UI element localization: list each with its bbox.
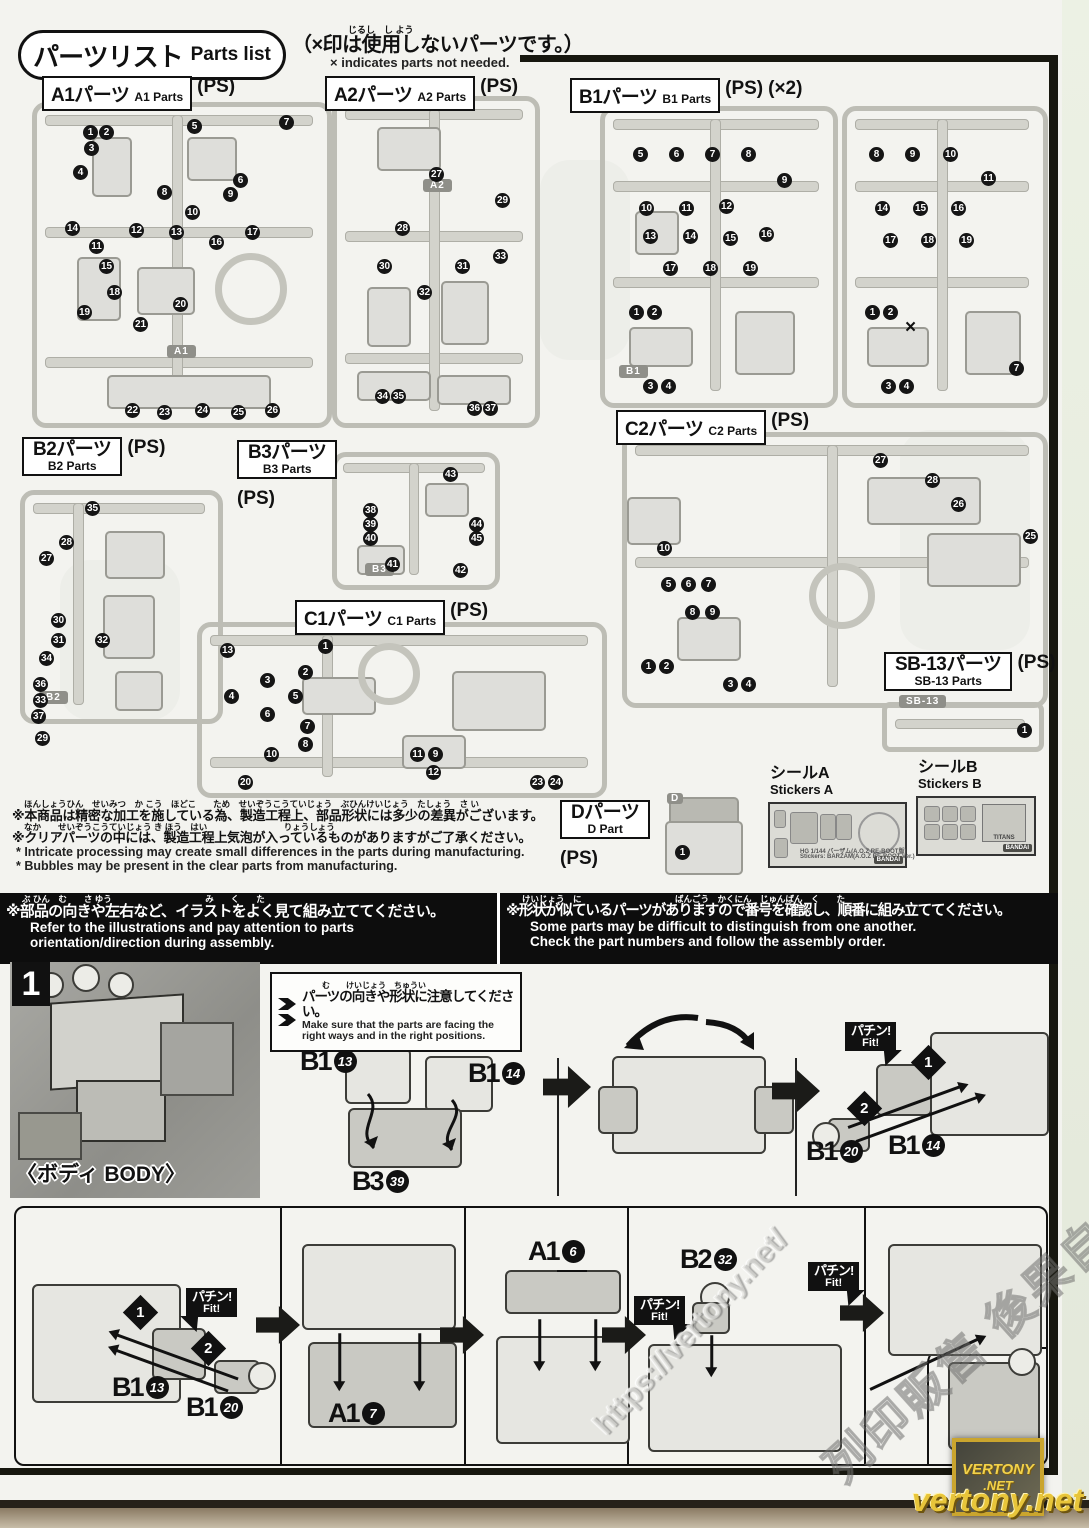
warning-left: ぶ ひん む さ ゆう み く た ※部品の向きや左右など、イラストをよく見て組… [6, 895, 492, 951]
part-number-badge: 40 [363, 531, 378, 546]
part-number-badge: 10 [657, 541, 672, 556]
part-ref-b1-14: B114 [888, 1130, 945, 1161]
sprue-b3: B3 4338394044454142 [332, 452, 500, 590]
c2-label-en: C2 Parts [708, 424, 757, 438]
section-label-b1: B1パーツ B1 Parts (PS) (×2) [570, 78, 802, 113]
part-number-badge: 38 [363, 503, 378, 518]
part-number-badge: 18 [921, 233, 936, 248]
sb13-material: (PS) [1017, 652, 1055, 674]
joint-ball [108, 972, 134, 998]
part-number-badge: 1 [83, 125, 98, 140]
part-number-badge: 4 [73, 165, 88, 180]
section-label-c2: C2パーツ C2 Parts (PS) [616, 410, 809, 445]
stickers-a-label-jp: シールA [770, 766, 833, 783]
part-ref-b3-39: B339 [352, 1166, 409, 1197]
part-number-badge: 23 [530, 775, 545, 790]
insert-arrow [419, 1333, 422, 1383]
body-section-label: 〈ボディ BODY〉 [16, 1158, 186, 1188]
stickers-b-label-en: Stickers B [918, 777, 982, 791]
section-label-b3: B3パーツ B3 Parts (PS) [237, 440, 337, 510]
part-number-badge: 2 [659, 659, 674, 674]
part-number-badge: 5 [661, 577, 676, 592]
part-number-badge: 1 [629, 305, 644, 320]
sprue-a2-part-numbers: 2728293031323334353637 [337, 101, 535, 423]
part-number-badge: 6 [669, 147, 684, 162]
part-number-badge: 25 [1023, 529, 1038, 544]
part-number-badge: 9 [905, 147, 920, 162]
sprue-c1-part-numbers: 13123456781011912202324 [202, 627, 602, 793]
sb13-label-en: SB-13 Parts [895, 675, 1001, 688]
part-number-badge: 13 [643, 229, 658, 244]
page-title-en: Parts list [191, 44, 271, 66]
assembled-body-shape [302, 1244, 456, 1330]
part-number-badge: 4 [224, 689, 239, 704]
part-number-badge: 10 [264, 747, 279, 762]
sprue-b2: B2 3528273031323436333729 [20, 490, 223, 724]
warning-right-en1: Some parts may be difficult to distingui… [506, 920, 1052, 935]
part-number-badge: 7 [1009, 361, 1024, 376]
d-label-box: Dパーツ D Part [560, 800, 650, 839]
part-number-badge: 1 [865, 305, 880, 320]
x-note-jp: （×印は使用しないパーツです。） [292, 35, 583, 56]
part-ref-a1-7: A17 [328, 1398, 385, 1429]
part-number-badge: 7 [701, 577, 716, 592]
b3-material: (PS) [237, 488, 275, 510]
sticker [836, 814, 852, 840]
part-number-badge: 6 [260, 707, 275, 722]
d-material: (PS) [560, 848, 598, 870]
c2-material: (PS) [771, 410, 809, 432]
sticker-sheet-b: TITANS BANDAI [916, 796, 1036, 856]
joint-ball [72, 964, 100, 992]
sprue-b1-second: 89101114151617181912×347 [842, 106, 1048, 408]
part-ref-b1-13: B113 [112, 1372, 169, 1403]
part-number-badge: 3 [723, 677, 738, 692]
part-number-badge: 9 [428, 747, 443, 762]
part-number-badge: 24 [195, 403, 210, 418]
part-number-badge: 35 [85, 501, 100, 516]
part-number-badge: 44 [469, 517, 484, 532]
warning-right-jp: ※形状が似ているパーツがありますので番号を確認し、順番に組み立ててください。 [506, 904, 1052, 920]
titans-emblem-sticker: TITANS [982, 804, 1026, 842]
part-number-badge: 16 [951, 201, 966, 216]
c1-label-jp: C1パーツ [304, 604, 382, 631]
part-number-badge: 11 [410, 747, 425, 762]
stickers-a-label-en: Stickers A [770, 783, 833, 797]
part-number-badge: 6 [681, 577, 696, 592]
c1-label-box: C1パーツ C1 Parts [295, 600, 445, 635]
a1-label-jp: A1パーツ [51, 80, 129, 107]
warning-left-en2: orientation/direction during assembly. [6, 936, 492, 951]
sprue-a2: A2 2728293031323334353637 [332, 96, 540, 428]
side-armor-shape [160, 1022, 234, 1096]
part-not-used-x-mark: × [905, 317, 916, 339]
warning-right: けいじょう に ばんごう かくにん じゅんばん く た ※形状が似ているパーツが… [506, 895, 1052, 950]
part-number-badge: 14 [65, 221, 80, 236]
sticker [960, 824, 976, 840]
part-number-badge: 27 [429, 167, 444, 182]
section-label-d: Dパーツ D Part (PS) [560, 800, 650, 870]
part-number-badge: 4 [741, 677, 756, 692]
sb13-label-box: SB-13パーツ SB-13 Parts [884, 652, 1012, 691]
sprue-sb13-part-numbers: 1 [887, 707, 1039, 747]
part-number-badge: 22 [125, 403, 140, 418]
sprue-a1: A1 1234576891014121311161715181920212223… [32, 102, 332, 428]
part-number-badge: 21 [133, 317, 148, 332]
part-number-badge: 31 [455, 259, 470, 274]
part-number-badge: 3 [260, 673, 275, 688]
panel-divider [795, 1058, 797, 1196]
callout-en2: right ways and in the right positions. [302, 1031, 514, 1042]
b1-quantity: (×2) [768, 78, 802, 100]
part-number-badge: 15 [99, 259, 114, 274]
part-number-badge: 10 [639, 201, 654, 216]
x-note-en: × indicates parts not needed. [292, 56, 583, 70]
callout-text: む けいじょう ちゅうい パーツの向きや形状に注意してください。 Make su… [302, 982, 514, 1042]
part-number-badge: 34 [39, 651, 54, 666]
part-number-badge: 27 [873, 453, 888, 468]
fit-badge: パチン! Fit! [845, 1022, 896, 1051]
x-mark-note: じるし し よう （×印は使用しないパーツです。） × indicates pa… [292, 26, 583, 70]
page-frame-bottom [0, 1468, 1058, 1475]
d-part-drawing: D 1 [665, 797, 743, 873]
part-number-badge: 32 [417, 285, 432, 300]
d-label-en: D Part [571, 823, 639, 836]
part-number-badge: 37 [31, 709, 46, 724]
b1-material: (PS) [725, 78, 763, 100]
part-number-badge: 8 [869, 147, 884, 162]
sticker [924, 806, 940, 822]
part-number-badge: 31 [51, 633, 66, 648]
part-number-badge: 35 [391, 389, 406, 404]
part-number-badge: 36 [33, 677, 48, 692]
sticker [942, 824, 958, 840]
insert-curved-arrows-icon [340, 1090, 490, 1170]
warning-left-jp: ※部品の向きや左右など、イラストをよく見て組み立ててください。 [6, 904, 492, 921]
assembled-body-flap [598, 1086, 638, 1134]
part-number-badge: 1 [641, 659, 656, 674]
part-number-badge: 9 [223, 187, 238, 202]
b2-material: (PS) [127, 437, 165, 459]
insert-arrow [539, 1319, 542, 1363]
a1-material: (PS) [197, 76, 235, 98]
part-number-badge: 19 [77, 305, 92, 320]
a2-label-en: A2 Parts [417, 90, 466, 104]
section-label-a2: A2パーツ A2 Parts (PS) [325, 76, 518, 111]
sprue-c1: 13123456781011912202324 [197, 622, 607, 798]
part-number-badge: 7 [279, 115, 294, 130]
part-number-badge: 29 [35, 731, 50, 746]
note-en-2: * Bubbles may be present in the clear pa… [12, 860, 572, 873]
part-number-badge: 7 [300, 719, 315, 734]
part-number-badge: 28 [59, 535, 74, 550]
fit-badge: パチン! Fit! [186, 1288, 237, 1317]
insert-arrow [711, 1335, 714, 1369]
sprue-b1-first: B1 56789101112131415161718191234 [600, 106, 838, 408]
warning-right-en2: Check the part numbers and follow the as… [506, 935, 1052, 950]
instruction-manual-page: パーツリスト Parts list じるし し よう （×印は使用しないパーツで… [0, 0, 1089, 1528]
sprue-tag-a1: A1 [167, 345, 196, 358]
a2-label-jp: A2パーツ [334, 80, 412, 107]
c2-label-jp: C2パーツ [625, 414, 703, 441]
sprue-tag-d: D [667, 793, 683, 804]
a2-label-box: A2パーツ A2 Parts [325, 76, 475, 111]
part-ref-b1-20: B120 [186, 1392, 243, 1423]
part-number-badge: 1 [1017, 723, 1032, 738]
part-number-badge: 2 [298, 665, 313, 680]
part-number-badge: 28 [925, 473, 940, 488]
sprue-b1-part-numbers: 56789101112131415161718191234 [605, 111, 833, 403]
c1-label-en: C1 Parts [387, 614, 436, 628]
part-number-badge: 9 [705, 605, 720, 620]
part-number-badge: 24 [548, 775, 563, 790]
part-number-badge: 1 [675, 845, 690, 860]
b3-label-en: B3 Parts [248, 463, 326, 476]
insert-arrow [339, 1333, 342, 1383]
part-number-badge: 33 [33, 693, 48, 708]
sprue-b2-part-numbers: 3528273031323436333729 [25, 495, 218, 719]
b2-label-jp: B2パーツ [33, 440, 111, 460]
part-number-badge: 32 [95, 633, 110, 648]
warning-left-en1: Refer to the illustrations and pay atten… [6, 921, 492, 936]
a2-material: (PS) [480, 76, 518, 98]
part-number-badge: 12 [129, 223, 144, 238]
sprue-tag-sb13: SB-13 [899, 695, 946, 708]
sticker [774, 810, 786, 828]
part-number-badge: 1 [318, 639, 333, 654]
joint-ball [1008, 1348, 1036, 1376]
part-number-badge: 18 [703, 261, 718, 276]
watermark-site-text: vertony.net [912, 1482, 1083, 1519]
part-number-badge: 9 [777, 173, 792, 188]
c2-label-box: C2パーツ C2 Parts [616, 410, 766, 445]
part-number-badge: 36 [467, 401, 482, 416]
assembled-body-shape [930, 1032, 1049, 1136]
page-frame-top [520, 55, 1058, 62]
orientation-callout-box: む けいじょう ちゅうい パーツの向きや形状に注意してください。 Make su… [270, 972, 522, 1052]
part-number-badge: 2 [647, 305, 662, 320]
part-number-badge: 28 [395, 221, 410, 236]
part-number-badge: 20 [173, 297, 188, 312]
part-number-badge: 11 [89, 239, 104, 254]
part-number-badge: 29 [495, 193, 510, 208]
stickers-b-label-jp: シールB [918, 760, 982, 777]
part-number-badge: 8 [685, 605, 700, 620]
part-number-badge: 17 [883, 233, 898, 248]
part-number-badge: 19 [743, 261, 758, 276]
warning-divider [497, 893, 500, 964]
part-number-badge: 12 [719, 199, 734, 214]
part-number-badge: 25 [231, 405, 246, 420]
part-number-badge: 34 [375, 389, 390, 404]
sticker [960, 806, 976, 822]
part-number-badge: 4 [661, 379, 676, 394]
part-number-badge: 10 [943, 147, 958, 162]
b3-label-box: B3パーツ B3 Parts [237, 440, 337, 479]
part-number-badge: 6 [233, 173, 248, 188]
sb13-label-jp: SB-13パーツ [895, 655, 1001, 675]
part-number-badge: 17 [663, 261, 678, 276]
part-number-badge: 5 [187, 119, 202, 134]
part-number-badge: 16 [759, 227, 774, 242]
section-label-c1: C1パーツ C1 Parts (PS) [295, 600, 488, 635]
part-number-badge: 26 [951, 497, 966, 512]
sticker [924, 824, 940, 840]
parts-list-title-box: パーツリスト Parts list [18, 30, 286, 80]
part-number-badge: 7 [705, 147, 720, 162]
stickers-a-label: シールA Stickers A [770, 766, 833, 796]
note-jp-1: ※本商品は精密な加工を施している為、製造工程上、部品形状には多少の差異がございま… [12, 809, 572, 823]
part-number-badge: 4 [899, 379, 914, 394]
part-number-badge: 17 [245, 225, 260, 240]
next-step-arrow-icon [543, 1066, 591, 1108]
part-ref-a1-6: A16 [528, 1236, 585, 1267]
part-number-badge: 2 [99, 125, 114, 140]
part-number-badge: 16 [209, 235, 224, 250]
section-label-a1: A1パーツ A1 Parts (PS) [42, 76, 235, 111]
part-number-badge: 41 [385, 557, 400, 572]
sticker [774, 838, 788, 858]
bandai-logo: BANDAI [874, 856, 903, 864]
insert-arrow [595, 1319, 598, 1363]
part-number-badge: 30 [51, 613, 66, 628]
sprue-a1-part-numbers: 1234576891014121311161715181920212223242… [37, 107, 327, 423]
part-number-badge: 45 [469, 531, 484, 546]
part-number-badge: 8 [298, 737, 313, 752]
sprue-sb13: SB-13 1 [882, 702, 1044, 752]
part-number-badge: 15 [913, 201, 928, 216]
c1-material: (PS) [450, 600, 488, 622]
part-number-badge: 30 [377, 259, 392, 274]
sprue-b1-second-part-numbers: 89101114151617181912×347 [847, 111, 1043, 403]
joint-ball [248, 1362, 276, 1390]
part-number-badge: 13 [169, 225, 184, 240]
sticker-sheet-a: HG 1/144 バーザム(A.O.Z RE-BOOT版) Stickers: … [768, 802, 907, 868]
part-ref-b1-13: B113 [300, 1046, 357, 1077]
part-number-badge: 27 [39, 551, 54, 566]
part-number-badge: 37 [483, 401, 498, 416]
b2-label-en: B2 Parts [33, 460, 111, 473]
part-number-badge: 3 [84, 141, 99, 156]
arm-shape [18, 1112, 82, 1160]
step-number: 1 [12, 962, 50, 1006]
rotate-arrows-icon [598, 1006, 768, 1052]
part-ref-b1-14: B114 [468, 1058, 525, 1089]
b1-label-jp: B1パーツ [579, 82, 657, 109]
part-number-badge: 20 [238, 775, 253, 790]
part-number-badge: 26 [265, 403, 280, 418]
part-number-badge: 14 [875, 201, 890, 216]
manufacturing-notes: ほんしょうひん せいみつ か こう ほどこ ため せいぞうこうていじょう ぶひん… [12, 800, 572, 873]
b3-label-jp: B3パーツ [248, 443, 326, 463]
b1-label-box: B1パーツ B1 Parts [570, 78, 720, 113]
b2-label-box: B2パーツ B2 Parts [22, 437, 122, 476]
stickers-b-label: シールB Stickers B [918, 760, 982, 790]
part-number-badge: 8 [741, 147, 756, 162]
part-number-badge: 43 [443, 467, 458, 482]
part-number-badge: 18 [107, 285, 122, 300]
part-number-badge: 23 [157, 405, 172, 420]
b1-label-en: B1 Parts [662, 92, 711, 106]
part-number-badge: 11 [679, 201, 694, 216]
part-number-badge: 13 [220, 643, 235, 658]
callout-jp: パーツの向きや形状に注意してください。 [302, 990, 514, 1019]
part-number-badge: 39 [363, 517, 378, 532]
part-number-badge: 3 [881, 379, 896, 394]
waist-shape [76, 1080, 166, 1142]
part-ref-b1-20: B120 [806, 1136, 863, 1167]
sticker [942, 806, 958, 822]
page-title-jp: パーツリスト [33, 37, 182, 74]
a1-label-box: A1パーツ A1 Parts [42, 76, 192, 111]
part-number-badge: 5 [288, 689, 303, 704]
part-number-badge: 14 [683, 229, 698, 244]
part-number-badge: 15 [723, 231, 738, 246]
sticker [790, 812, 818, 844]
fit-badge: パチン! Fit! [808, 1262, 859, 1291]
sticker [820, 814, 836, 840]
d-part-numbers: 1 [665, 797, 743, 873]
sprue-b3-part-numbers: 4338394044454142 [337, 457, 495, 585]
part-number-badge: 5 [633, 147, 648, 162]
part-number-badge: 33 [493, 249, 508, 264]
note-jp-2: ※クリアパーツの中には、製造工程上気泡が入っているものがありますがご了承ください… [12, 831, 572, 845]
part-number-badge: 12 [426, 765, 441, 780]
part-number-badge: 11 [981, 171, 996, 186]
part-a1-6-shape [505, 1270, 621, 1314]
note-en-1: * Intricate processing may create small … [12, 846, 572, 859]
part-number-badge: 19 [959, 233, 974, 248]
part-number-badge: 8 [157, 185, 172, 200]
section-label-sb13: SB-13パーツ SB-13 Parts (PS) [884, 652, 1055, 691]
double-chevron-icon [278, 998, 296, 1026]
section-label-b2: B2パーツ B2 Parts (PS) [22, 437, 165, 476]
d-label-jp: Dパーツ [571, 803, 639, 823]
part-number-badge: 3 [643, 379, 658, 394]
bandai-logo: BANDAI [1003, 844, 1032, 852]
part-number-badge: 10 [185, 205, 200, 220]
part-number-badge: 42 [453, 563, 468, 578]
sprue-tag-b1: B1 [619, 365, 648, 378]
a1-label-en: A1 Parts [134, 90, 183, 104]
part-number-badge: 2 [883, 305, 898, 320]
